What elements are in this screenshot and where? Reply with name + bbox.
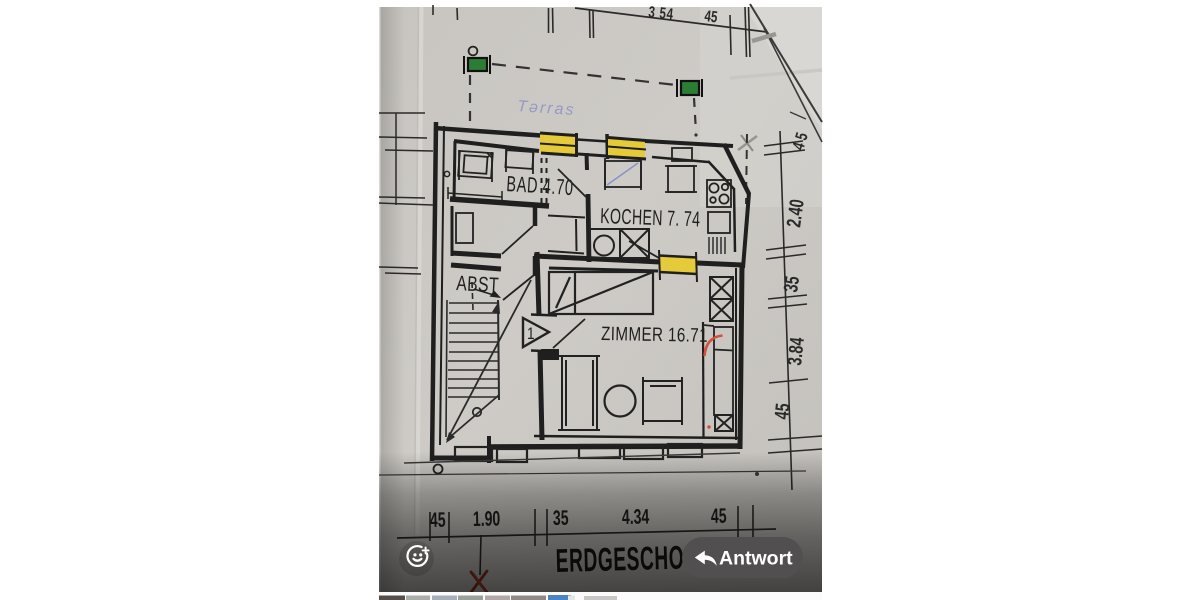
svg-text:1: 1: [527, 325, 535, 344]
svg-text:3 54: 3 54: [648, 2, 675, 23]
svg-text:KOCHEN 7. 74: KOCHEN 7. 74: [600, 204, 701, 231]
svg-text:2.40: 2.40: [782, 198, 809, 229]
svg-text:45: 45: [770, 402, 795, 421]
svg-text:45: 45: [704, 6, 719, 26]
svg-text:ZIMMER 16.71: ZIMMER 16.71: [601, 322, 708, 346]
svg-text:3.84: 3.84: [783, 336, 809, 367]
svg-text:Antwort: Antwort: [719, 548, 793, 570]
